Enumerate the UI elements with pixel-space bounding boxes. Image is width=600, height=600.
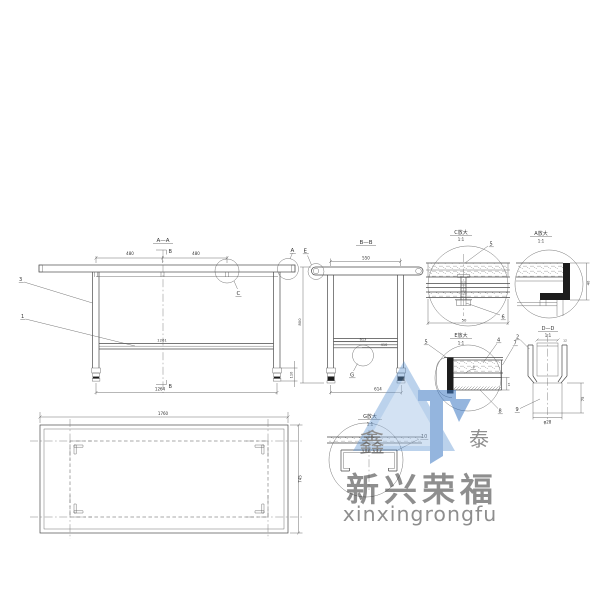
front-bottom-dim: 1264 — [95, 383, 279, 395]
detail-e-title: E放大 — [454, 332, 467, 339]
dim-40: 40 — [586, 280, 591, 285]
side-tabletop — [312, 267, 424, 275]
front-top-dim: 480 480 — [95, 251, 229, 263]
front-view: A—A B B 1261 — [19, 238, 299, 395]
dim-12: 12 — [563, 339, 567, 343]
plan-top-dim: 1760 — [39, 411, 290, 423]
rod-top-dim: 12 — [536, 339, 567, 343]
detail-d-scale: 1:1 — [545, 333, 552, 338]
watermark-xin-char: 鑫 — [359, 429, 385, 459]
detail-a-dim: 40 — [570, 263, 591, 300]
detail-e-scale: 1:1 — [458, 341, 465, 346]
front-legs — [92, 272, 281, 381]
side-top-dim: 550 — [329, 256, 402, 267]
front-shelf-dim: 1261 — [157, 338, 167, 343]
front-tabletop — [39, 265, 295, 277]
corner-brackets — [30, 419, 303, 539]
cad-drawing: A—A B B 1261 — [0, 0, 600, 600]
plan-frame-hidden — [70, 441, 268, 517]
side-height-dim: 800 — [297, 267, 324, 383]
dim-480-left: 480 — [126, 251, 134, 256]
detail-circle-e — [308, 264, 324, 280]
dim-1760: 1760 — [158, 411, 169, 416]
front-view-title: A—A — [156, 238, 169, 244]
dim-614: 614 — [374, 387, 382, 392]
dim-dia-28: φ28 — [544, 420, 552, 425]
detail-c-view: C放大 1:1 5 6 50 — [426, 229, 510, 326]
section-mark-b-bottom: B — [169, 384, 173, 390]
detail-c-title: C放大 — [454, 229, 468, 236]
dim-410: 410 — [381, 343, 388, 347]
dim-800: 800 — [297, 318, 302, 326]
watermark-tai-char: 泰 — [469, 427, 489, 451]
dim-75: 75 — [580, 396, 585, 401]
edge-angle-trim-e — [447, 358, 454, 394]
dim-745: 745 — [298, 475, 303, 483]
watermark-triangle-small — [449, 399, 471, 422]
watermark: 鑫 泰 新兴荣福 xinxingrongfu — [343, 361, 498, 526]
dim-550: 550 — [362, 256, 370, 261]
dim-15: 15 — [507, 383, 511, 387]
detail-a-scale: 1:1 — [538, 239, 545, 244]
detail-c-scale: 1:1 — [458, 237, 465, 242]
side-view-title: B—B — [359, 240, 372, 246]
section-mark-b-top: B — [169, 249, 173, 255]
plan-view: 1760 745 — [30, 411, 303, 539]
side-legs — [327, 275, 406, 383]
plan-right-dim: 745 — [290, 424, 303, 535]
detail-d-right-dim: 75 — [562, 383, 585, 413]
dim-613: 613 — [360, 337, 367, 341]
dim-480-right: 480 — [192, 251, 200, 256]
dim-bottom-front: 1264 — [155, 387, 166, 392]
front-foot-dim: 110 — [281, 361, 298, 387]
drawing-sheet: A—A B B 1261 — [0, 0, 600, 600]
detail-d-view: D—D 1:1 12 φ28 75 2 9 — [515, 326, 585, 425]
detail-a-title: A放大 — [534, 230, 547, 237]
dim-foot-height: 110 — [290, 372, 294, 379]
dim-50: 50 — [462, 318, 467, 323]
detail-c-dim: 50 — [427, 299, 510, 325]
watermark-brand-en: xinxingrongfu — [343, 502, 497, 526]
front-shelf — [99, 344, 274, 350]
detail-d-title: D—D — [542, 326, 555, 332]
detail-e-dim: 15 — [502, 378, 511, 391]
detail-a-view: A放大 1:1 40 — [515, 230, 591, 318]
